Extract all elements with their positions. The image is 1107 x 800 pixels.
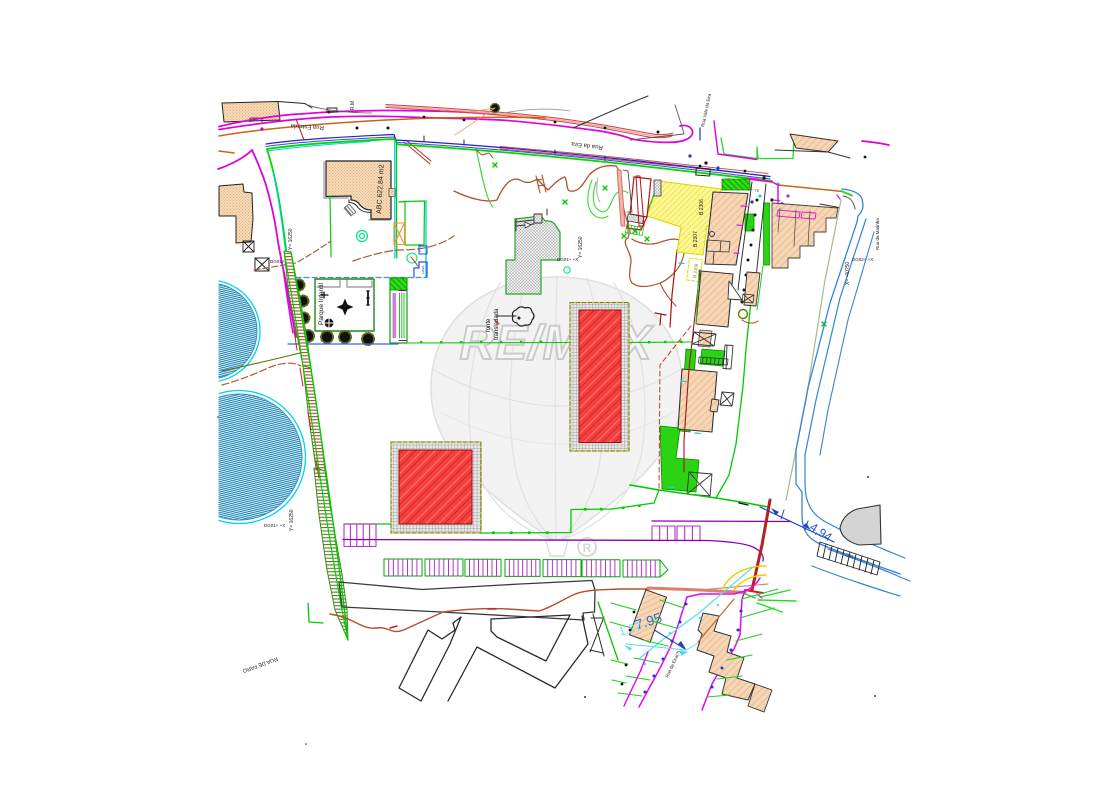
svg-text:R.M: R.M	[350, 101, 356, 110]
svg-text:R: R	[583, 541, 592, 555]
svg-text:fonte: fonte	[486, 318, 492, 332]
svg-text:DG01+ +X: DG01+ +X	[264, 523, 285, 528]
svg-text:B.2307: B.2307	[693, 231, 699, 247]
svg-text:FCR: FCR	[417, 244, 422, 252]
svg-text:casa: casa	[420, 265, 425, 274]
svg-text:Y= 16250: Y= 16250	[288, 228, 294, 250]
svg-text:Parque Infantil: Parque Infantil	[318, 283, 325, 325]
svg-text:Y= 16250: Y= 16250	[578, 236, 584, 258]
svg-text:B.2306: B.2306	[699, 199, 705, 215]
svg-text:X= -40?50: X= -40?50	[845, 262, 851, 285]
svg-text:Rua da Matinha: Rua da Matinha	[875, 218, 880, 250]
svg-text:Y= 16250: Y= 16250	[289, 509, 295, 531]
svg-text:DG02+ +X: DG02+ +X	[852, 257, 873, 262]
svg-text:DG01+ +X: DG01+ +X	[557, 257, 578, 262]
